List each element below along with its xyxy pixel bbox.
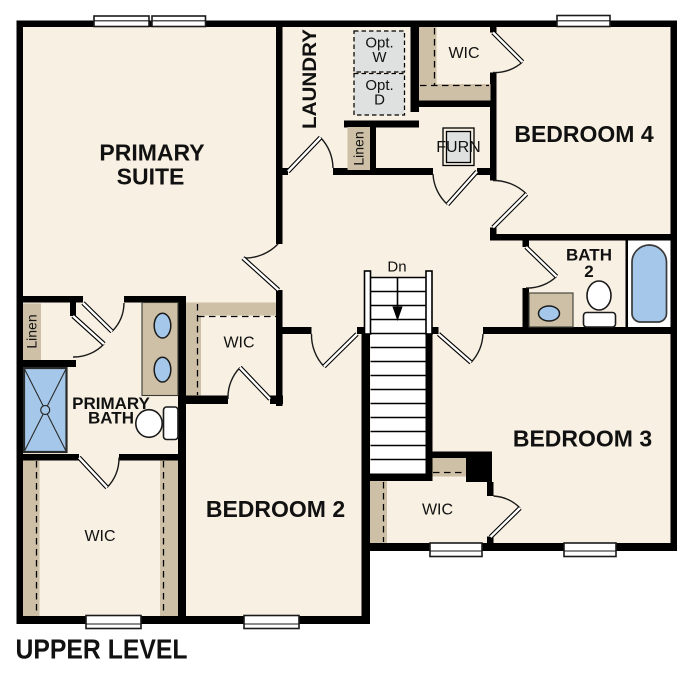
svg-text:LAUNDRY: LAUNDRY: [299, 29, 321, 129]
svg-text:BEDROOM 2: BEDROOM 2: [206, 496, 345, 522]
svg-text:WIC: WIC: [448, 45, 479, 62]
svg-text:PRIMARY: PRIMARY: [99, 140, 204, 166]
svg-text:D: D: [374, 92, 385, 109]
svg-text:Dn: Dn: [387, 259, 406, 276]
svg-text:UPPER LEVEL: UPPER LEVEL: [16, 634, 188, 665]
svg-text:SUITE: SUITE: [117, 164, 185, 190]
svg-text:FURN: FURN: [436, 139, 480, 156]
svg-text:W: W: [372, 49, 387, 66]
svg-text:2: 2: [584, 262, 593, 281]
svg-text:Linen: Linen: [351, 131, 367, 165]
svg-text:WIC: WIC: [84, 528, 115, 545]
svg-text:BATH: BATH: [88, 409, 134, 428]
svg-text:BEDROOM 3: BEDROOM 3: [513, 426, 652, 452]
svg-text:BEDROOM 4: BEDROOM 4: [514, 121, 654, 147]
svg-text:WIC: WIC: [422, 502, 453, 519]
svg-text:Linen: Linen: [24, 314, 40, 348]
svg-text:WIC: WIC: [223, 335, 254, 352]
